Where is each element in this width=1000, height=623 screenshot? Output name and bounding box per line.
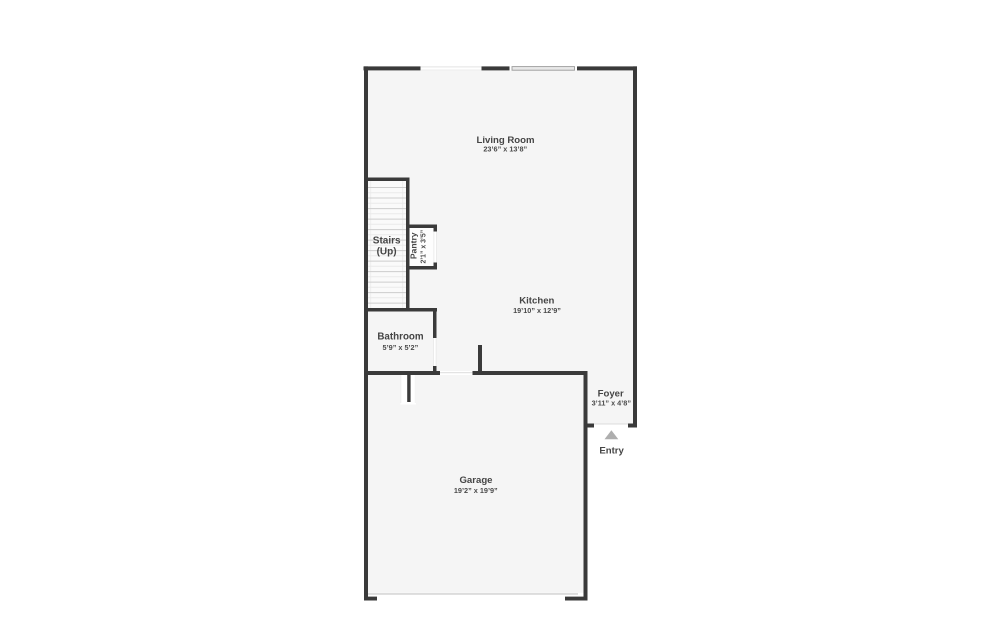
svg-text:5’9” x 5’2”: 5’9” x 5’2”: [383, 343, 419, 352]
svg-text:3’11” x 4’8”: 3’11” x 4’8”: [592, 398, 632, 407]
svg-text:19’10” x 12’9”: 19’10” x 12’9”: [513, 306, 561, 315]
svg-text:(Up): (Up): [377, 246, 397, 257]
svg-text:19’2” x 19’9”: 19’2” x 19’9”: [454, 486, 498, 495]
svg-text:Pantry: Pantry: [409, 232, 419, 259]
svg-text:Bathroom: Bathroom: [377, 332, 424, 343]
svg-text:2’1” x 3’5”: 2’1” x 3’5”: [420, 230, 427, 264]
svg-text:23’6” x 13’8”: 23’6” x 13’8”: [483, 145, 527, 154]
svg-text:Stairs: Stairs: [373, 236, 401, 247]
svg-text:Entry: Entry: [599, 445, 624, 456]
svg-text:Kitchen: Kitchen: [519, 296, 554, 307]
svg-text:Garage: Garage: [459, 475, 492, 486]
